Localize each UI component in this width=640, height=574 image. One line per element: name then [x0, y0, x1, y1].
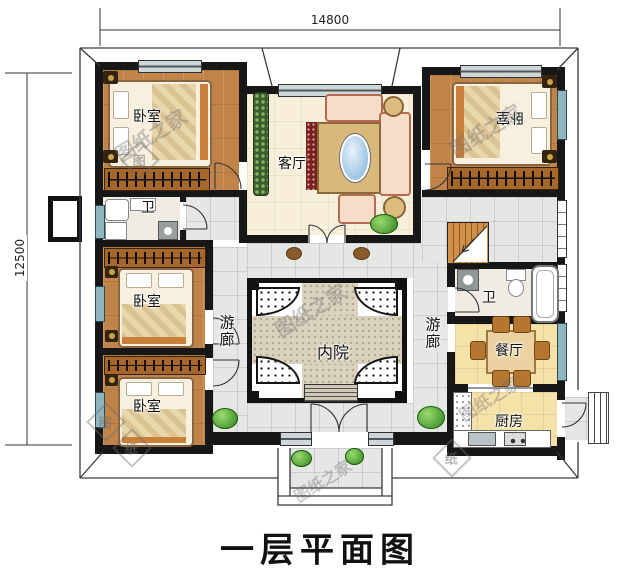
bathtub: [531, 265, 559, 323]
wall-south-left: [205, 432, 280, 445]
kitchen-sink: [468, 432, 496, 446]
nightstand: [542, 150, 557, 163]
wardrobe: [447, 167, 559, 190]
label-bathroom-left: 卫: [141, 197, 155, 217]
chair: [513, 316, 531, 333]
dimension-top-label: 14800: [307, 13, 353, 27]
wall: [422, 67, 430, 150]
sofa: [379, 112, 411, 196]
hall-by-bathroom: [186, 197, 244, 240]
pillow: [113, 91, 129, 119]
label-courtyard: 内院: [317, 339, 349, 363]
stoop-steps: [588, 392, 609, 444]
window: [557, 200, 567, 258]
pillow: [158, 273, 184, 288]
label-bathroom-right: 卫: [482, 287, 496, 307]
shower-tray: [105, 222, 127, 240]
blanket-accent: [122, 337, 186, 344]
chair: [534, 341, 550, 360]
chair: [513, 370, 531, 387]
window: [557, 323, 567, 381]
label-kitchen: 厨房: [495, 411, 523, 431]
window: [138, 60, 202, 73]
window-sidelight-right: [368, 432, 394, 446]
wardrobe: [104, 248, 206, 268]
wall: [346, 235, 421, 243]
blanket-accent: [456, 86, 464, 158]
label-living-room: 客厅: [278, 153, 306, 173]
bush: [212, 408, 238, 429]
nightstand: [103, 71, 118, 84]
washing-machine: [158, 221, 178, 240]
pillow: [126, 273, 152, 288]
flowerbed: [256, 287, 300, 316]
rug-runner: [306, 122, 317, 190]
wall: [239, 235, 308, 243]
wall: [422, 67, 460, 75]
wall: [533, 384, 565, 392]
label-bedroom-top-right: 卧室: [496, 108, 524, 128]
terrace-south: [247, 403, 413, 432]
wall: [95, 348, 213, 355]
nightstand: [105, 374, 118, 386]
bush: [345, 448, 364, 465]
sofa: [325, 94, 383, 122]
flowerbed: [354, 287, 398, 316]
kitchen-stoop-platform: [562, 397, 588, 440]
window: [95, 205, 105, 239]
stepping-stone: [286, 247, 302, 260]
window: [460, 65, 542, 78]
blanket-accent: [200, 84, 208, 160]
window-sidelight-left: [280, 432, 312, 446]
wall: [205, 247, 213, 310]
nightstand: [103, 150, 118, 163]
wall: [447, 384, 468, 392]
label-veranda-right: 游廊: [425, 317, 442, 350]
courtyard-steps: [304, 384, 358, 402]
kitchen-door-opening: [557, 400, 565, 437]
pillow: [531, 92, 547, 119]
nightstand: [105, 330, 118, 342]
wall: [95, 240, 213, 247]
courtyard-post: [395, 391, 402, 398]
courtyard-post: [395, 283, 402, 290]
toilet-bowl: [508, 279, 524, 297]
wall: [239, 70, 247, 162]
wall: [95, 190, 247, 197]
wall: [180, 230, 186, 240]
sink: [457, 269, 479, 291]
nightstand: [105, 266, 118, 278]
label-veranda-left: 游廊: [219, 315, 236, 348]
floor-plan-canvas: 卧室 卧室 卧室 卧室 客厅 卫 卫 游廊 游廊 内院 餐厅 厨房 14800 …: [0, 0, 640, 574]
wall: [413, 86, 421, 243]
pillow: [126, 382, 152, 396]
plant-icon: [370, 214, 398, 234]
chair: [492, 316, 510, 333]
table-glass: [340, 134, 370, 182]
courtyard-post: [252, 283, 259, 290]
bush: [417, 406, 445, 429]
wardrobe: [104, 168, 210, 191]
chimney-symbol: [48, 196, 82, 242]
nightstand: [542, 75, 557, 88]
window: [557, 90, 567, 140]
courtyard-post: [252, 391, 259, 398]
pillow: [158, 382, 184, 396]
chair: [492, 370, 510, 387]
wall: [447, 269, 455, 287]
hall-top-right: [422, 197, 557, 262]
wardrobe: [104, 356, 206, 375]
wall: [180, 197, 186, 202]
label-bedroom-mid-left: 卧室: [133, 291, 161, 311]
terrace-north: [247, 243, 413, 278]
bush: [291, 450, 312, 467]
chair: [470, 341, 486, 360]
staircase: [447, 222, 489, 264]
plan-title: 一层平面图: [220, 523, 420, 572]
sink: [105, 199, 129, 221]
dimension-left-label: 12500: [13, 235, 27, 281]
side-table: [383, 96, 404, 117]
label-bedroom-top-left: 卧室: [133, 106, 161, 126]
label-dining-room: 餐厅: [495, 340, 523, 360]
label-bedroom-bottom-left: 卧室: [133, 396, 161, 416]
stepping-stone: [353, 247, 370, 260]
wall: [422, 190, 565, 197]
plant-icon: [253, 92, 269, 196]
window: [95, 286, 105, 322]
stove: [504, 432, 526, 446]
wall-south-right: [392, 432, 448, 445]
